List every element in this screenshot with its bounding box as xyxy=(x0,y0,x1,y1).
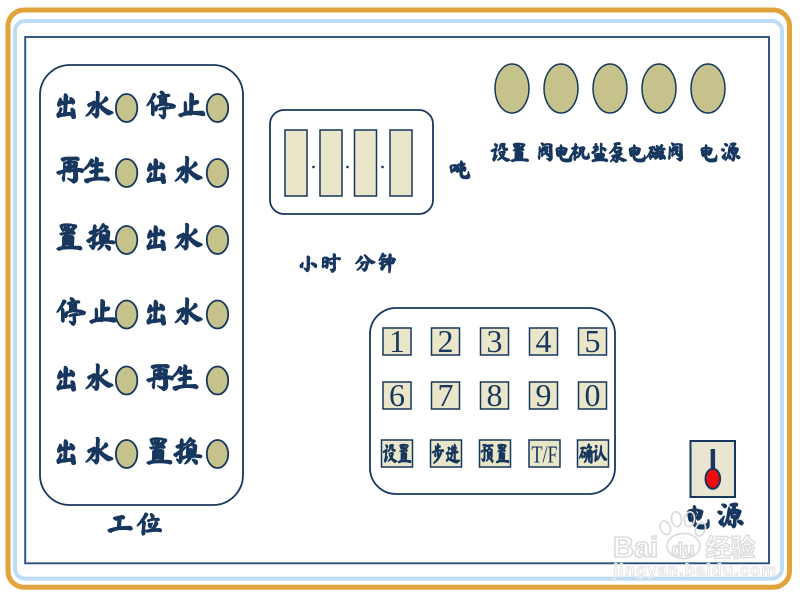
svg-text:5: 5 xyxy=(585,323,601,359)
svg-text:T/F: T/F xyxy=(532,443,558,469)
svg-text:du: du xyxy=(672,540,695,561)
svg-text:Bai: Bai xyxy=(613,532,658,564)
svg-text:9: 9 xyxy=(536,377,552,413)
svg-text:3: 3 xyxy=(487,323,503,359)
svg-text:4: 4 xyxy=(536,323,552,359)
svg-text:jingyan.baidu.com: jingyan.baidu.com xyxy=(613,562,778,580)
svg-text:0: 0 xyxy=(585,377,601,413)
svg-text:8: 8 xyxy=(487,377,503,413)
svg-text:2: 2 xyxy=(438,323,454,359)
svg-text:6: 6 xyxy=(389,377,405,413)
svg-text:7: 7 xyxy=(438,377,454,413)
svg-text:1: 1 xyxy=(389,323,405,359)
